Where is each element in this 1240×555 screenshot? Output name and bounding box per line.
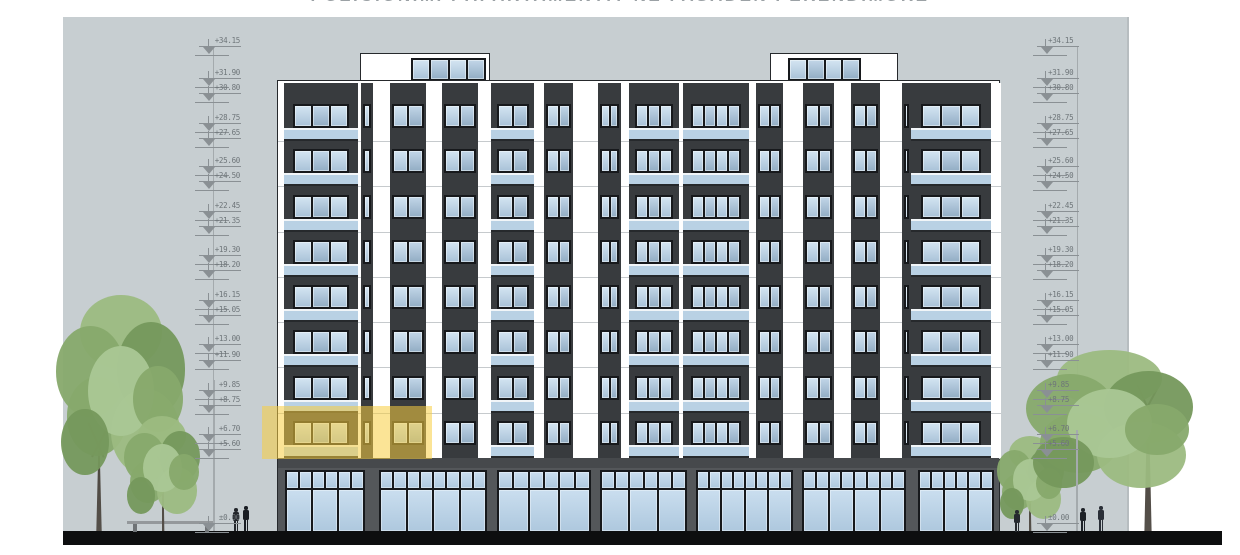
strip-window (758, 376, 781, 400)
storefront-pane (804, 472, 815, 488)
window-pane (826, 60, 842, 79)
window-pane (807, 151, 818, 171)
balcony-railing (683, 219, 749, 232)
marker-label: +21.35 (1048, 217, 1073, 225)
window-pane (717, 242, 727, 262)
window-pane (807, 332, 818, 352)
marker-level-icon (203, 94, 215, 101)
window-pane (705, 151, 715, 171)
storefront-pane (313, 490, 337, 531)
window-pane (295, 242, 311, 262)
storefront-pane (326, 472, 337, 488)
window-pane (602, 197, 609, 217)
strip-window (363, 240, 371, 264)
marker-tick (1045, 442, 1046, 449)
marker-level-icon (203, 450, 215, 457)
marker-tick (1045, 263, 1046, 270)
strip-window (546, 285, 571, 309)
balcony-window (691, 149, 741, 173)
window-pane (313, 332, 329, 352)
window-pane (394, 151, 407, 171)
window-pane (855, 378, 865, 398)
window-pane (611, 332, 618, 352)
window-pane (693, 197, 703, 217)
strip-window (546, 376, 571, 400)
balcony-railing (911, 445, 991, 458)
marker-level-icon (203, 361, 215, 368)
storefront-transom-row (602, 472, 685, 488)
window-pane (649, 332, 659, 352)
marker-tick (208, 383, 209, 390)
window-pane (649, 197, 659, 217)
storefront-pane (461, 490, 486, 531)
balcony-window (691, 195, 741, 219)
marker-tick (208, 86, 209, 93)
window-pane (661, 423, 671, 443)
storefront-pane (381, 490, 406, 531)
storefront-pane (287, 472, 298, 488)
strip-window (805, 104, 832, 128)
window-pane (649, 378, 659, 398)
marker-level-icon (1041, 450, 1053, 457)
strip-window (363, 104, 371, 128)
window-pane (729, 151, 739, 171)
window-pane (855, 151, 865, 171)
window-pane (461, 242, 474, 262)
facade-bay-white (991, 83, 1001, 458)
person-leg (1015, 523, 1017, 532)
window-pane (942, 242, 959, 262)
marker-label: +34.15 (1048, 37, 1073, 45)
balcony-railing (683, 445, 749, 458)
window-pane (867, 423, 877, 443)
storefront-pane (830, 472, 841, 488)
window-pane (514, 423, 527, 443)
storefront-pane (868, 472, 879, 488)
balcony-railing (911, 128, 991, 141)
window-pane (693, 106, 703, 126)
marker-line-lower (1033, 147, 1067, 148)
facade-bay-balcony (491, 83, 534, 458)
storefront-pane (881, 472, 892, 488)
person-figure (242, 506, 250, 531)
window-pane (693, 287, 703, 307)
window-pane (365, 106, 369, 126)
storefront-pane (842, 472, 853, 488)
elevation-marker: +34.15 (1033, 37, 1081, 57)
storefront-transom-row (920, 472, 992, 488)
elevation-marker: +21.35 (195, 217, 243, 237)
storefront-pane (514, 472, 527, 488)
window-pane (295, 287, 311, 307)
window-pane (409, 151, 422, 171)
window-pane (942, 423, 959, 443)
window-pane (923, 378, 940, 398)
window-pane (394, 242, 407, 262)
marker-level-icon (1041, 182, 1053, 189)
window-pane (906, 378, 907, 398)
window-pane (867, 151, 877, 171)
storefront-pane (352, 472, 363, 488)
balcony-window (293, 240, 349, 264)
marker-label: +6.70 (1048, 425, 1069, 433)
window-pane (867, 287, 877, 307)
window-pane (461, 106, 474, 126)
marker-tick (208, 263, 209, 270)
elevation-marker: +30.80 (195, 84, 243, 104)
storefront-pane (734, 472, 744, 488)
window-pane (705, 423, 715, 443)
window-pane (446, 287, 459, 307)
window-pane (514, 378, 527, 398)
marker-tick (208, 174, 209, 181)
marker-level-icon (1041, 47, 1053, 54)
strip-window (853, 285, 878, 309)
facade-bay-white (749, 83, 911, 458)
window-pane (717, 106, 727, 126)
marker-label: +16.15 (215, 291, 240, 299)
marker-line-lower (1033, 55, 1067, 56)
strip-window (600, 240, 619, 264)
storefront-pane (830, 490, 854, 531)
storefront-transom-row (804, 472, 904, 488)
window-strip (361, 83, 373, 458)
window-pane (560, 287, 570, 307)
elevation-marker: +34.15 (195, 37, 243, 57)
marker-line-lower (195, 414, 229, 415)
marker-tick (208, 71, 209, 78)
elevation-column-right: +34.15+31.90+30.80+28.75+27.65+25.60+24.… (1033, 0, 1081, 555)
window-pane (560, 332, 570, 352)
window-pane (331, 197, 347, 217)
balcony-railing (683, 309, 749, 322)
marker-tick (1045, 353, 1046, 360)
window-pane (461, 378, 474, 398)
storefront-pane (474, 472, 485, 488)
marker-level-icon (203, 316, 215, 323)
window-pane (771, 423, 780, 443)
marker-label: +31.90 (1048, 69, 1073, 77)
facade-bay-balcony (683, 83, 749, 458)
window-pane (514, 242, 527, 262)
window-pane (771, 332, 780, 352)
marker-tick (1045, 174, 1046, 181)
marker-level-icon (1041, 361, 1053, 368)
storefront-pane (920, 472, 930, 488)
window-pane (843, 60, 859, 79)
window-pane (611, 242, 618, 262)
person-leg (244, 520, 246, 531)
window-pane (637, 242, 647, 262)
storefront-pane (421, 472, 432, 488)
window-pane (499, 151, 512, 171)
strip-window (805, 285, 832, 309)
marker-label: +5.60 (219, 440, 240, 448)
strip-window (805, 330, 832, 354)
marker-label: +5.60 (1048, 440, 1069, 448)
marker-label: ±0.00 (1048, 514, 1069, 522)
storefront-pane (545, 472, 558, 488)
storefront-pane (673, 472, 685, 488)
window-pane (446, 197, 459, 217)
window-pane (649, 287, 659, 307)
marker-tick (208, 398, 209, 405)
marker-tick (208, 308, 209, 315)
strip-window (392, 376, 424, 400)
marker-line-lower (195, 369, 229, 370)
window-pane (548, 242, 558, 262)
storefront-glazing-row (287, 490, 363, 531)
storefront-pane (769, 490, 791, 531)
window-pane (461, 423, 474, 443)
storefront-pane (630, 472, 642, 488)
marker-tick (1045, 131, 1046, 138)
building (277, 80, 1000, 532)
elevation-marker: +5.60 (195, 440, 243, 460)
window-pane (729, 423, 739, 443)
window-pane (962, 197, 979, 217)
foliage-blob (127, 477, 155, 513)
balcony-window (691, 104, 741, 128)
window-pane (923, 197, 940, 217)
storefront-transom-row (287, 472, 363, 488)
storefront-pane (855, 490, 879, 531)
window-pane (409, 378, 422, 398)
strip-window (853, 195, 878, 219)
window-pane (548, 151, 558, 171)
window-pane (450, 60, 466, 79)
window-pane (548, 423, 558, 443)
window-pane (446, 151, 459, 171)
storefront-pane (659, 490, 685, 531)
strip-window (600, 285, 619, 309)
window-pane (409, 332, 422, 352)
balcony-railing (284, 354, 358, 367)
window-pane (602, 151, 609, 171)
window-pane (705, 287, 715, 307)
storefront-pane (855, 472, 866, 488)
marker-label: +8.75 (1048, 396, 1069, 404)
strip-window (600, 104, 619, 128)
window-pane (760, 106, 769, 126)
person-leg (1081, 521, 1083, 531)
storefront-pane (945, 472, 955, 488)
balcony-railing (911, 264, 991, 277)
window-pane (331, 378, 347, 398)
balcony-window (293, 149, 349, 173)
balcony-railing (491, 400, 534, 413)
window-pane (611, 287, 618, 307)
marker-level-icon (203, 406, 215, 413)
strip-window (600, 149, 619, 173)
window-pane (446, 332, 459, 352)
window-pane (760, 197, 769, 217)
window-pane (820, 106, 831, 126)
marker-tick (208, 131, 209, 138)
window-pane (649, 423, 659, 443)
marker-level-icon (203, 227, 215, 234)
balcony-railing (629, 173, 679, 186)
storefront-pane (698, 490, 720, 531)
balcony-window (691, 240, 741, 264)
balcony-window (921, 149, 981, 173)
marker-label: +28.75 (215, 114, 240, 122)
window-pane (560, 423, 570, 443)
storefront-pane (381, 472, 392, 488)
balcony-window (635, 149, 673, 173)
balcony-railing (284, 128, 358, 141)
window-pane (313, 242, 329, 262)
balcony-railing (629, 445, 679, 458)
marker-tick (1045, 248, 1046, 255)
window-pane (661, 197, 671, 217)
elevation-marker: +11.90 (1033, 351, 1081, 371)
marker-tick (1045, 427, 1046, 434)
window-pane (409, 197, 422, 217)
marker-line-lower (1033, 414, 1067, 415)
strip-window (546, 104, 571, 128)
balcony-window (921, 376, 981, 400)
storefront-section (600, 470, 687, 533)
window-pane (717, 378, 727, 398)
window-strip (442, 83, 478, 458)
window-pane (820, 332, 831, 352)
penthouse (360, 53, 490, 82)
strip-window (392, 240, 424, 264)
facade-bay-balcony (284, 83, 358, 458)
marker-line-lower (195, 190, 229, 191)
balcony-window (921, 330, 981, 354)
window-pane (771, 151, 780, 171)
marker-label: +9.85 (1048, 381, 1069, 389)
window-pane (365, 242, 369, 262)
strip-window (444, 285, 476, 309)
storefront-section (285, 470, 365, 533)
window-pane (602, 242, 609, 262)
balcony-window (921, 240, 981, 264)
storefront-pane (287, 490, 311, 531)
storefront-pane (499, 472, 512, 488)
marker-line-lower (1033, 458, 1067, 459)
window-pane (705, 332, 715, 352)
window-pane (365, 287, 369, 307)
window-pane (499, 423, 512, 443)
strip-window (853, 330, 878, 354)
window-pane (771, 242, 780, 262)
strip-window (392, 195, 424, 219)
window-pane (717, 332, 727, 352)
window-pane (923, 332, 940, 352)
strip-window (853, 376, 878, 400)
strip-window (363, 330, 371, 354)
balcony-window (497, 240, 529, 264)
balcony-window (497, 330, 529, 354)
elevation-marker: +21.35 (1033, 217, 1081, 237)
marker-level-icon (1041, 139, 1053, 146)
window-pane (313, 287, 329, 307)
storefront-pane (461, 472, 472, 488)
window-pane (771, 197, 780, 217)
marker-line-lower (1033, 235, 1067, 236)
storefront-section (696, 470, 793, 533)
storefront-pane (560, 490, 589, 531)
marker-label: +30.80 (215, 84, 240, 92)
balcony-window (691, 330, 741, 354)
strip-window (758, 421, 781, 445)
elevation-marker: +30.80 (1033, 84, 1081, 104)
storefront-pane (920, 490, 943, 531)
window-pane (611, 106, 618, 126)
strip-window (363, 195, 371, 219)
storefront-section (802, 470, 906, 533)
window-pane (611, 197, 618, 217)
window-pane (413, 60, 429, 79)
window-pane (923, 151, 940, 171)
window-pane (790, 60, 806, 79)
person-leg (1084, 521, 1086, 531)
window-pane (923, 423, 940, 443)
balcony-window (293, 376, 349, 400)
storefront-glazing-row (698, 490, 791, 531)
storefront-pane (630, 490, 656, 531)
strip-window (758, 285, 781, 309)
marker-tick (208, 442, 209, 449)
window-pane (661, 151, 671, 171)
window-pane (705, 378, 715, 398)
storefront-pane (659, 472, 671, 488)
window-pane (560, 242, 570, 262)
marker-tick (208, 39, 209, 46)
strip-window (758, 330, 781, 354)
balcony-railing (629, 219, 679, 232)
balcony-window (921, 285, 981, 309)
window-pane (461, 197, 474, 217)
window-pane (295, 197, 311, 217)
balcony-railing (683, 354, 749, 367)
window-strip (851, 83, 880, 458)
floor-slab-line (991, 367, 1001, 368)
strip-window (758, 104, 781, 128)
marker-label: +15.05 (1048, 306, 1073, 314)
window-pane (514, 332, 527, 352)
strip-window (444, 149, 476, 173)
foliage-blob (1125, 404, 1190, 455)
elevation-marker: +24.50 (1033, 172, 1081, 192)
window-pane (760, 423, 769, 443)
balcony-window (691, 376, 741, 400)
strip-window (363, 149, 371, 173)
window-pane (548, 378, 558, 398)
balcony-railing (491, 173, 534, 186)
window-pane (705, 197, 715, 217)
window-pane (962, 378, 979, 398)
window-pane (611, 151, 618, 171)
marker-level-icon (1041, 227, 1053, 234)
floor-slab-line (991, 141, 1001, 142)
strip-window (805, 376, 832, 400)
strip-window (904, 104, 909, 128)
window-pane (446, 423, 459, 443)
window-pane (855, 197, 865, 217)
marker-tick (208, 353, 209, 360)
marker-label: +21.35 (215, 217, 240, 225)
window-pane (409, 242, 422, 262)
marker-tick (1045, 516, 1046, 523)
person-body (1014, 514, 1019, 523)
balcony-window (497, 421, 529, 445)
window-pane (855, 242, 865, 262)
marker-label: +11.90 (1048, 351, 1073, 359)
